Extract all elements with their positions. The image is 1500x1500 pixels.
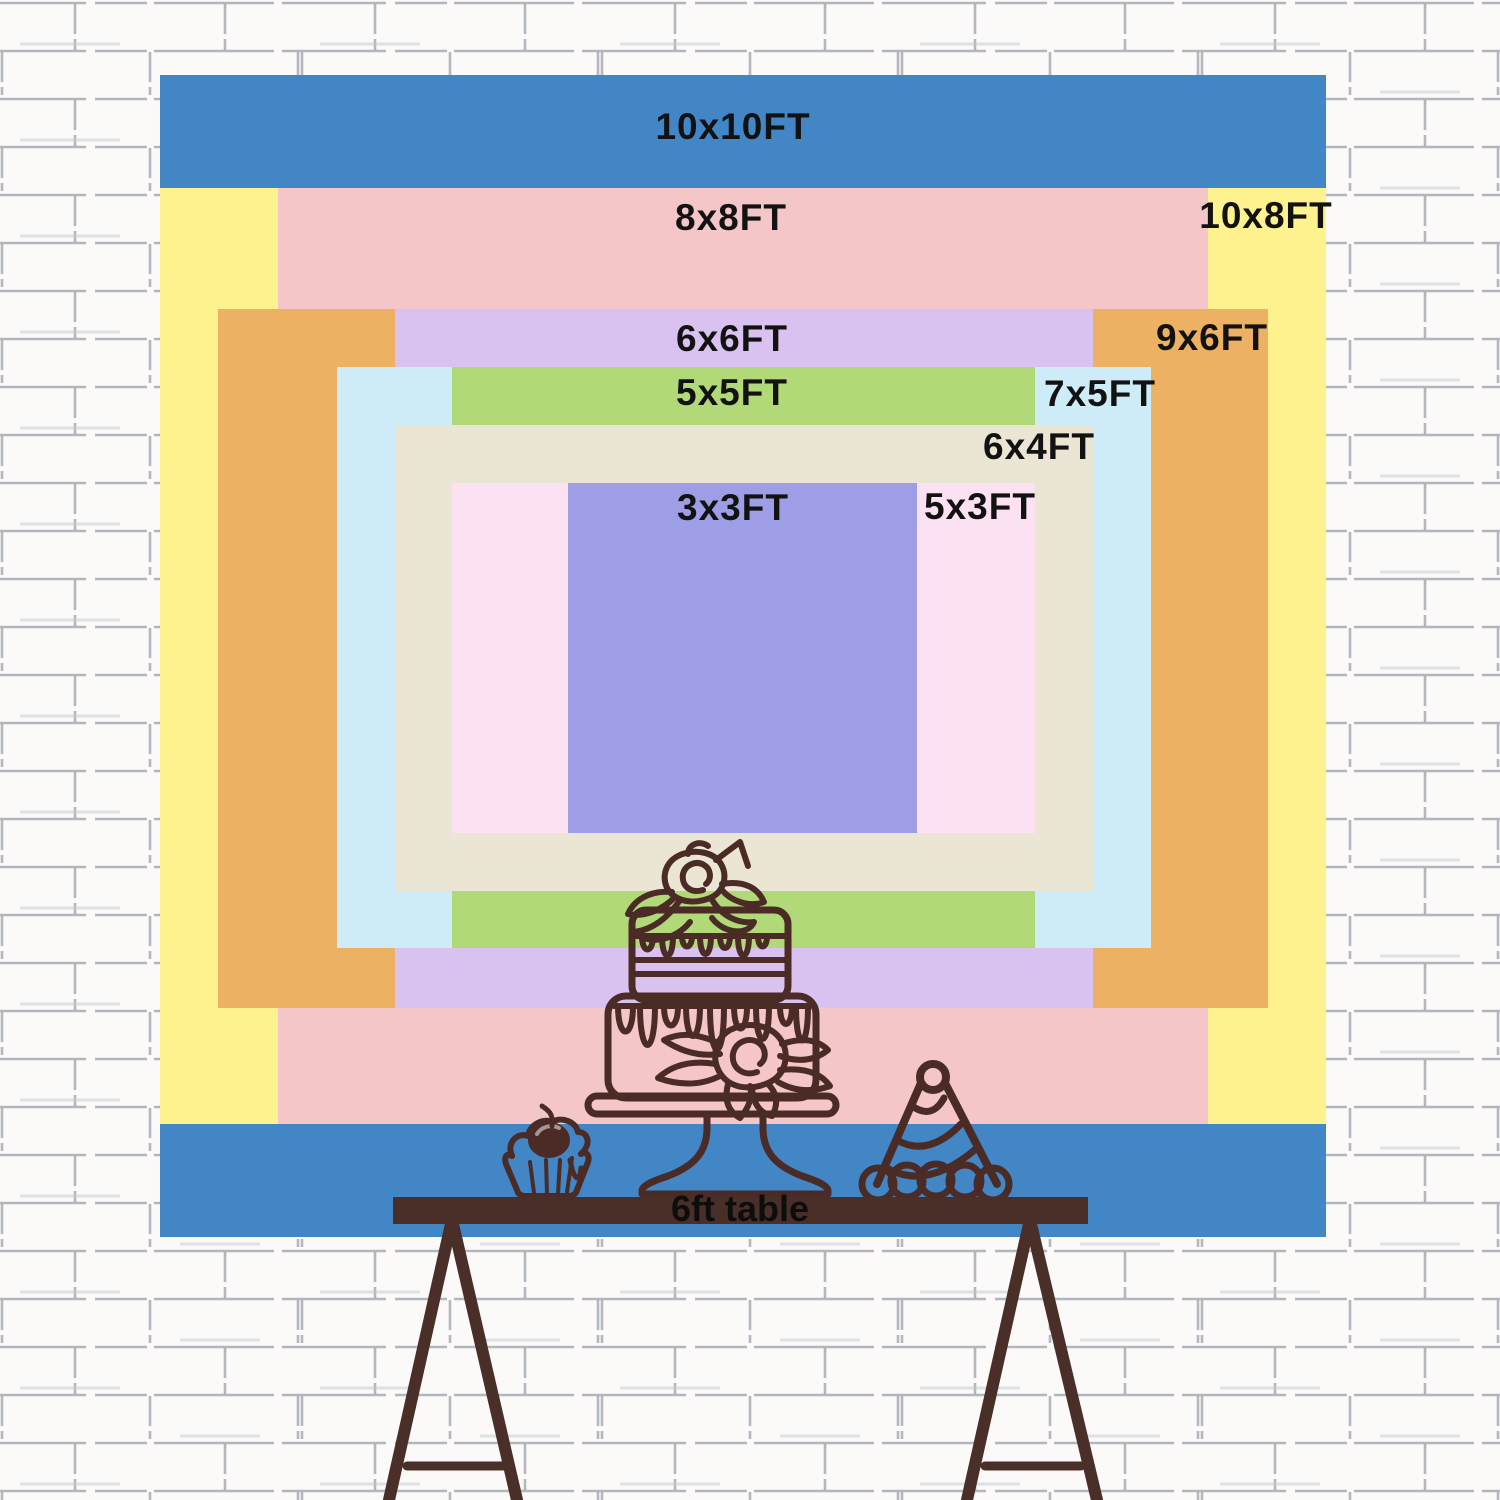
party-hat-icon [862, 1064, 1009, 1200]
table-and-desserts-artwork [0, 0, 1500, 1500]
table-size-label: 6ft table [671, 1188, 809, 1230]
backdrop-size-chart: 10x10FT 10x8FT 8x8FT 9x6FT 6x6FT 7x5FT 5… [0, 0, 1500, 1500]
cake-stand-pedestal [642, 1114, 828, 1194]
cake-top-rose [628, 842, 764, 940]
table-legs [389, 1224, 1097, 1500]
cupcake-icon [505, 1106, 588, 1196]
cupcake-cherry [531, 1125, 567, 1155]
tiered-cake-icon [588, 842, 836, 1194]
cake-bottom-rose [658, 1025, 830, 1118]
table [389, 1197, 1097, 1500]
